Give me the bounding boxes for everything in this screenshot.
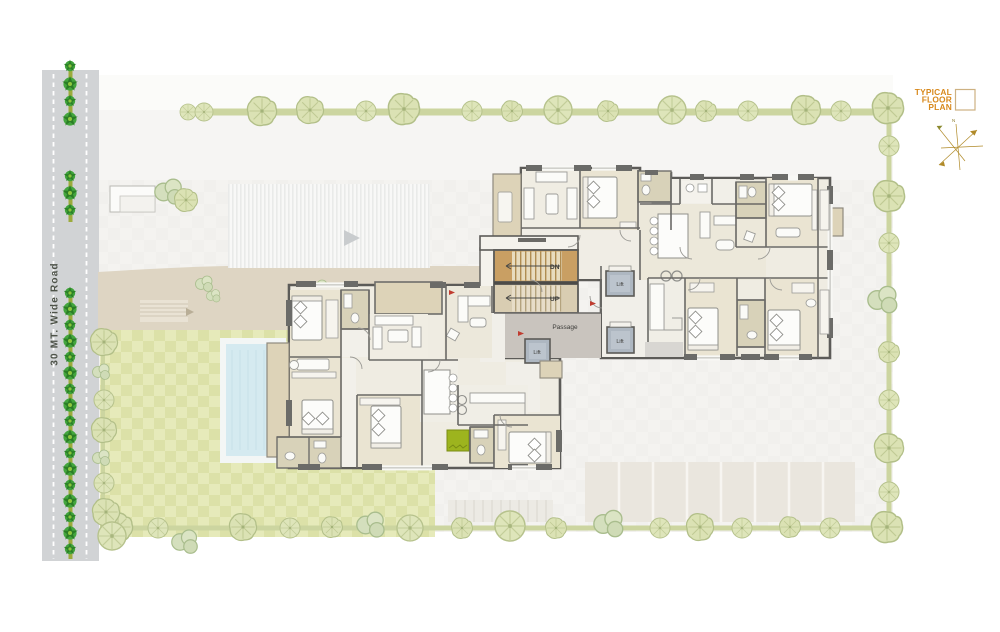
svg-text:Lift: Lift — [616, 282, 624, 288]
svg-text:Passage: Passage — [552, 324, 578, 331]
svg-text:30 MT. Wide Road: 30 MT. Wide Road — [50, 262, 61, 366]
svg-text:PLAN: PLAN — [928, 102, 952, 112]
svg-text:UP: UP — [550, 296, 560, 303]
svg-text:N: N — [952, 118, 955, 123]
svg-text:Lift: Lift — [533, 350, 541, 356]
svg-text:Lift: Lift — [616, 339, 624, 345]
svg-text:DN: DN — [550, 264, 560, 271]
